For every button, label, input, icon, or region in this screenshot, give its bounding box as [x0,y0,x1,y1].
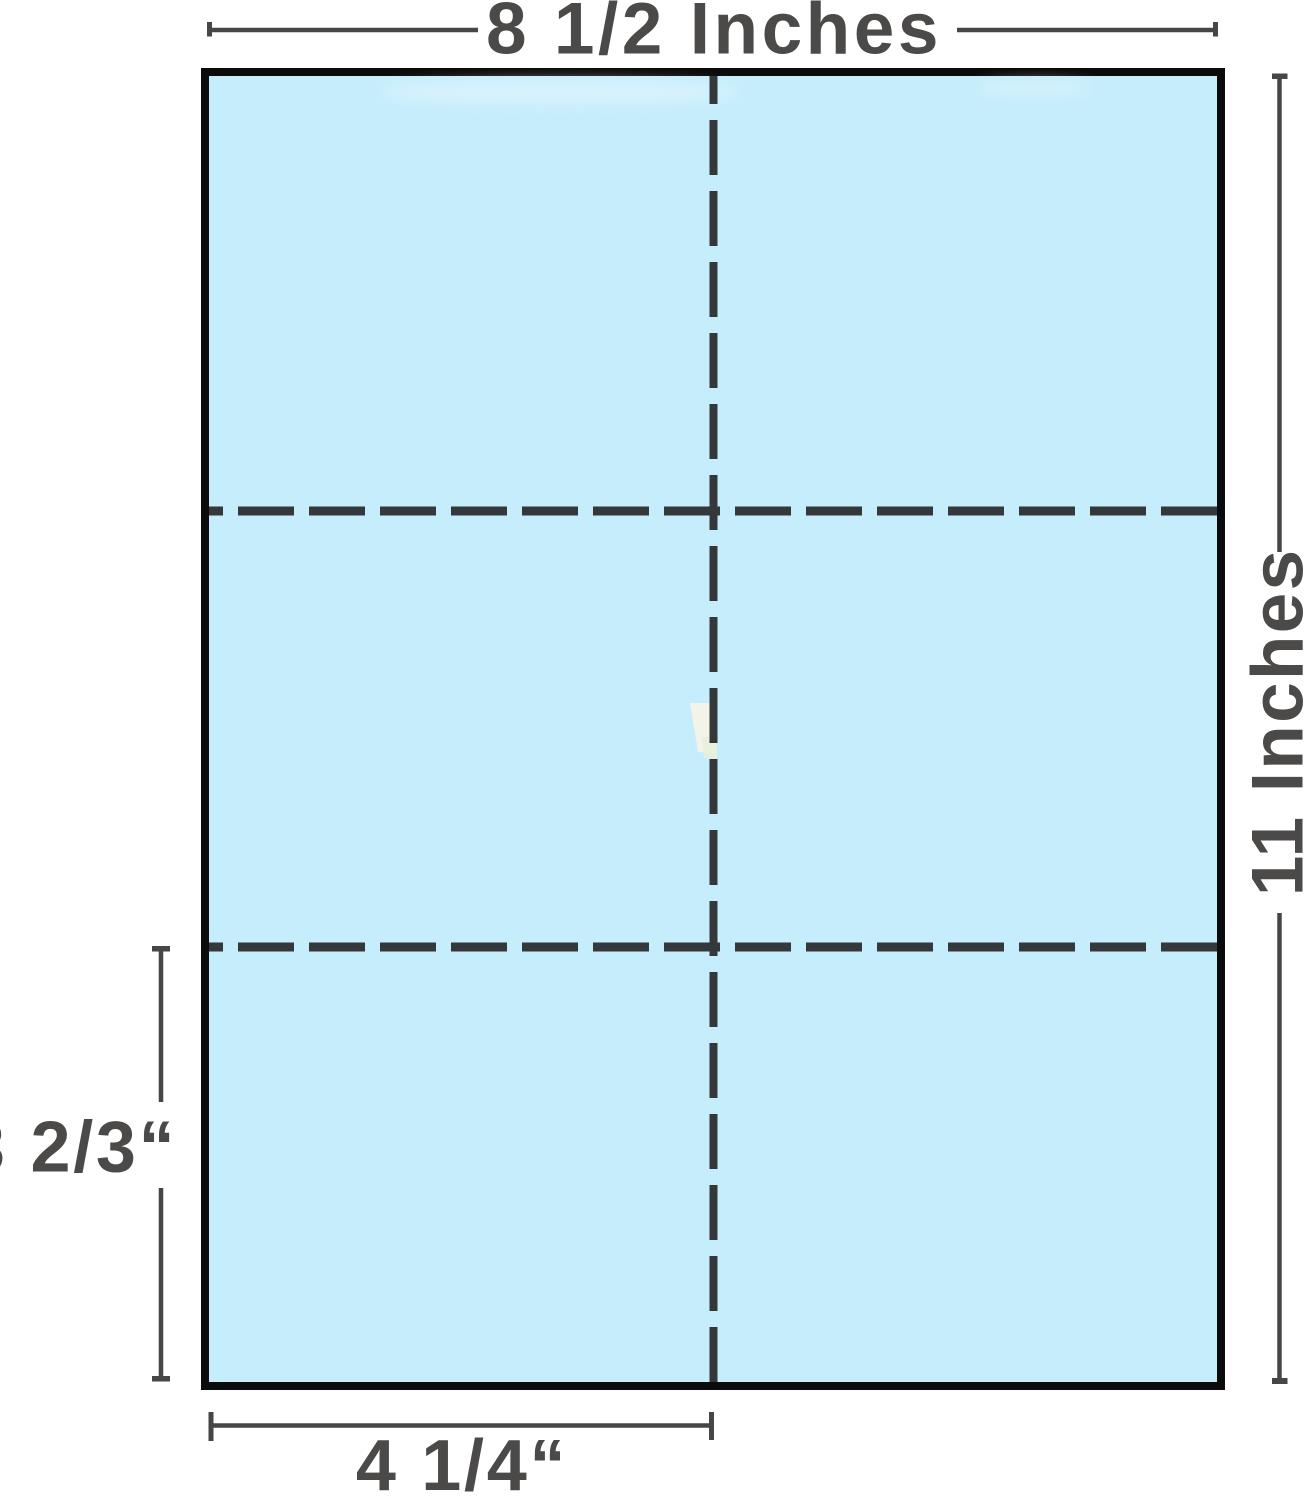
svg-text:8 1/2 Inches: 8 1/2 Inches [486,0,942,70]
svg-text:11 Inches: 11 Inches [1238,548,1306,897]
svg-text:4 1/4“: 4 1/4“ [356,1426,568,1500]
svg-text:3 2/3“: 3 2/3“ [0,1108,177,1188]
